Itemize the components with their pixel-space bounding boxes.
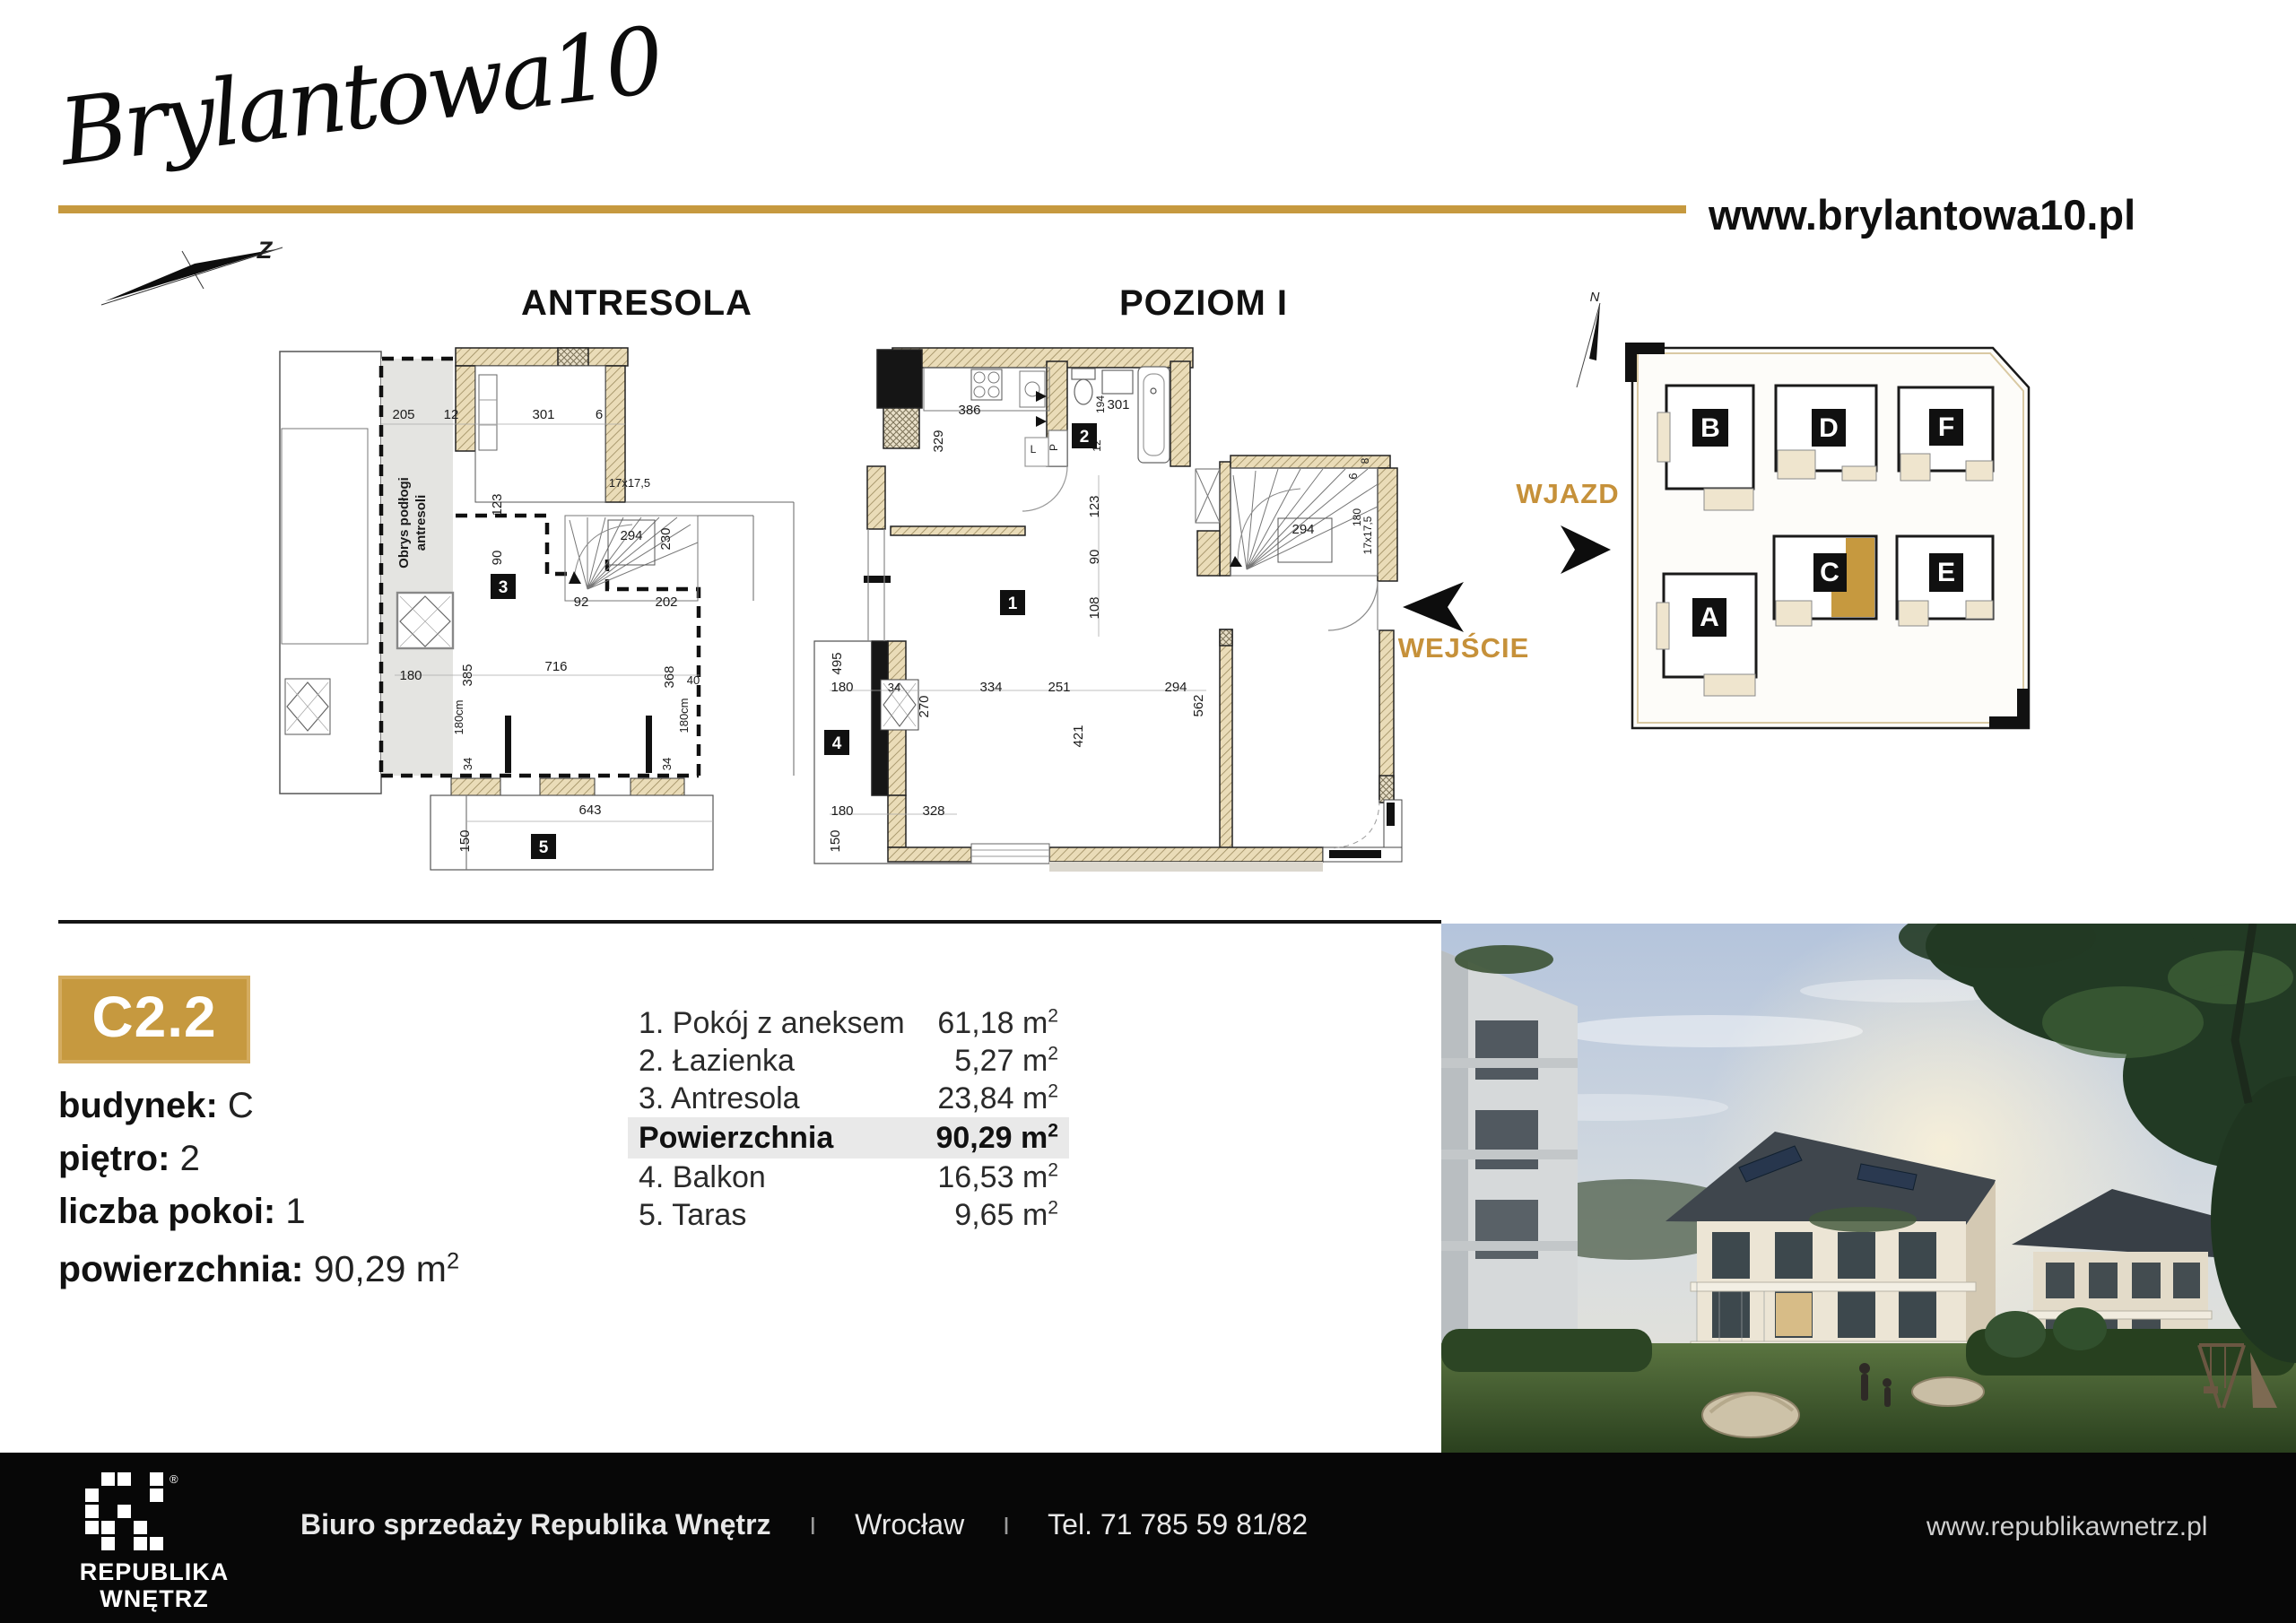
dim-label: 40 (687, 673, 700, 687)
dim-label: 92 (574, 595, 589, 610)
unit-code-badge: C2.2 (58, 976, 250, 1063)
dim-label: 294 (1291, 522, 1314, 537)
dim-label: L (1031, 443, 1037, 456)
room-number: 4 (832, 734, 842, 753)
svg-text:A: A (1700, 603, 1719, 632)
dim-label: Obrys podłogi (396, 477, 412, 568)
section-divider (58, 920, 1441, 924)
dim-label: 421 (1071, 725, 1086, 747)
dim-label: 643 (578, 803, 601, 818)
registered-mark-icon: ® (170, 1472, 178, 1486)
dim-label: P (1048, 444, 1060, 451)
dim-label: antresoli (413, 495, 429, 551)
driveway-label: WJAZD (1516, 478, 1619, 509)
dim-label: 12 (444, 407, 459, 422)
unit-building-row: budynek: C (58, 1080, 306, 1133)
svg-text:E: E (1937, 558, 1955, 587)
dim-label: 328 (922, 803, 944, 819)
dim-label: 385 (460, 664, 475, 686)
antresola-plan-title: ANTRESOLA (489, 283, 785, 324)
dim-label: 202 (655, 595, 677, 610)
dim-label: 495 (830, 652, 845, 674)
dim-label: 34 (461, 758, 474, 770)
dim-label: 108 (1087, 596, 1102, 619)
antresola-room (475, 366, 605, 502)
dim-label: 205 (392, 407, 414, 422)
dim-label: 150 (457, 829, 473, 852)
compass-z-label: Z (257, 237, 274, 264)
table-row: 1. Pokój z aneksem 61,18 m2 (628, 1004, 1069, 1042)
entrance-door (1328, 581, 1378, 630)
gold-divider-line (58, 205, 1686, 213)
poziom-walls (864, 348, 1397, 862)
dim-label: 180 (831, 803, 853, 819)
footer-phone: Tel. 71 785 59 81/82 (1048, 1508, 1308, 1541)
entrance-arrow-icon (1403, 582, 1464, 632)
svg-text:D: D (1819, 413, 1839, 443)
unit-rooms-row: liczba pokoi: 1 (58, 1185, 306, 1238)
poziom-plan-title: POZIOM I (1056, 283, 1352, 324)
compass-needle (105, 264, 195, 301)
table-row: 3. Antresola 23,84 m2 (628, 1080, 1069, 1117)
table-row: 4. Balkon 16,53 m2 (628, 1159, 1069, 1196)
poziom-room-numbers: 124 (824, 423, 1097, 755)
dim-label: 34 (660, 758, 674, 770)
dim-label: 17x17,5 (609, 476, 650, 490)
skylight-diamond-2 (397, 593, 453, 648)
north-compass-icon: N (1577, 290, 1600, 387)
dim-label: 180cm (677, 698, 691, 733)
dim-label: 562 (1191, 694, 1206, 716)
dim-label: 294 (1164, 680, 1187, 695)
dim-label: 334 (979, 680, 1002, 695)
footer-brand-name: REPUBLIKA WNĘTRZ (47, 1558, 262, 1612)
room-number: 1 (1008, 595, 1018, 613)
svg-text:C: C (1820, 558, 1839, 587)
building-C: C (1774, 536, 1876, 626)
dim-label: 90 (490, 551, 505, 566)
room-area-table: 1. Pokój z aneksem 61,18 m2 2. Łazienka … (628, 1004, 1069, 1234)
dim-label: 90 (1087, 550, 1102, 565)
svg-text:B: B (1700, 413, 1720, 443)
dim-label: 301 (1107, 397, 1129, 412)
corner-window (1323, 800, 1402, 862)
antresola-balcony-edge (451, 716, 684, 798)
dim-label: 368 (662, 665, 677, 688)
dim-label: 180 (831, 680, 853, 695)
dim-label: 6 (1346, 473, 1360, 479)
driveway-arrow-icon (1561, 525, 1611, 574)
kitchen-fixtures (924, 368, 1049, 427)
dim-label: 123 (490, 493, 505, 516)
building-A: A (1657, 574, 1756, 696)
building-D: D (1776, 386, 1876, 481)
company-website-link[interactable]: www.republikawnetrz.pl (1926, 1512, 2207, 1542)
photo-left-building (1441, 945, 1578, 1345)
dim-label: 329 (931, 430, 946, 452)
dim-label: 180 (399, 668, 422, 683)
dim-label: 123 (1087, 495, 1102, 517)
dim-label: 194 (1094, 395, 1107, 413)
entrance-label: WEJŚCIE (1398, 631, 1530, 664)
room-number: 5 (539, 838, 549, 857)
site-plan: N WJAZD WEJŚCIE B D (1390, 287, 2251, 789)
footer-contact-line: Biuro sprzedaży Republika Wnętrz I Wrocł… (300, 1508, 1308, 1541)
dim-label: 301 (532, 407, 554, 422)
unit-floor-row: piętro: 2 (58, 1133, 306, 1185)
room-number: 3 (499, 578, 509, 597)
dim-label: 386 (958, 403, 980, 418)
dim-label: 150 (828, 829, 843, 852)
dim-label: 270 (917, 695, 932, 717)
unit-area-row: powierzchnia: 90,29 m2 (58, 1248, 459, 1290)
dim-label: 8 (1359, 457, 1371, 464)
building-render-photo (1441, 924, 2296, 1453)
dim-label: 34 (888, 681, 900, 694)
total-area-row: Powierzchnia 90,29 m2 (628, 1117, 1069, 1159)
republika-wnetrz-logo: ® (85, 1472, 184, 1558)
skylight-diamond (287, 682, 328, 731)
table-row: 2. Łazienka 5,27 m2 (628, 1042, 1069, 1080)
dim-label: 180cm (452, 699, 465, 734)
building-E: E (1897, 536, 1993, 626)
footer-bar: ® REPUBLIKA WNĘTRZ Biuro sprzedaży Repub… (0, 1453, 2296, 1623)
table-row: 5. Taras 9,65 m2 (628, 1196, 1069, 1234)
unit-details: budynek: C piętro: 2 liczba pokoi: 1 (58, 1080, 306, 1238)
poziom1-floor-plan: 38632919430112123901088629418017x17,5PL4… (812, 341, 1431, 897)
dim-label: 230 (658, 527, 674, 550)
svg-text:N: N (1590, 290, 1600, 305)
dim-label: 251 (1048, 680, 1070, 695)
dim-label: 716 (544, 659, 567, 674)
dim-label: 17x17,5 (1361, 516, 1374, 554)
building-F: F (1899, 387, 1993, 481)
room-number: 2 (1080, 428, 1090, 447)
dim-label: 294 (620, 528, 642, 543)
brand-logo: Brylantowa10 (49, 0, 535, 228)
antresola-terrace (430, 795, 713, 870)
antresola-floor-plan: 2051230161239017x17,52942309220218038571… (269, 345, 807, 897)
brochure-page: Brylantowa10 www.brylantowa10.pl Z ANTRE… (0, 0, 2296, 1623)
antresola-roof-outline (280, 352, 381, 794)
dim-label: 6 (596, 407, 603, 422)
compass-west-icon: Z (49, 235, 291, 325)
svg-text:F: F (1938, 412, 1954, 442)
project-website-link[interactable]: www.brylantowa10.pl (1709, 190, 2135, 239)
